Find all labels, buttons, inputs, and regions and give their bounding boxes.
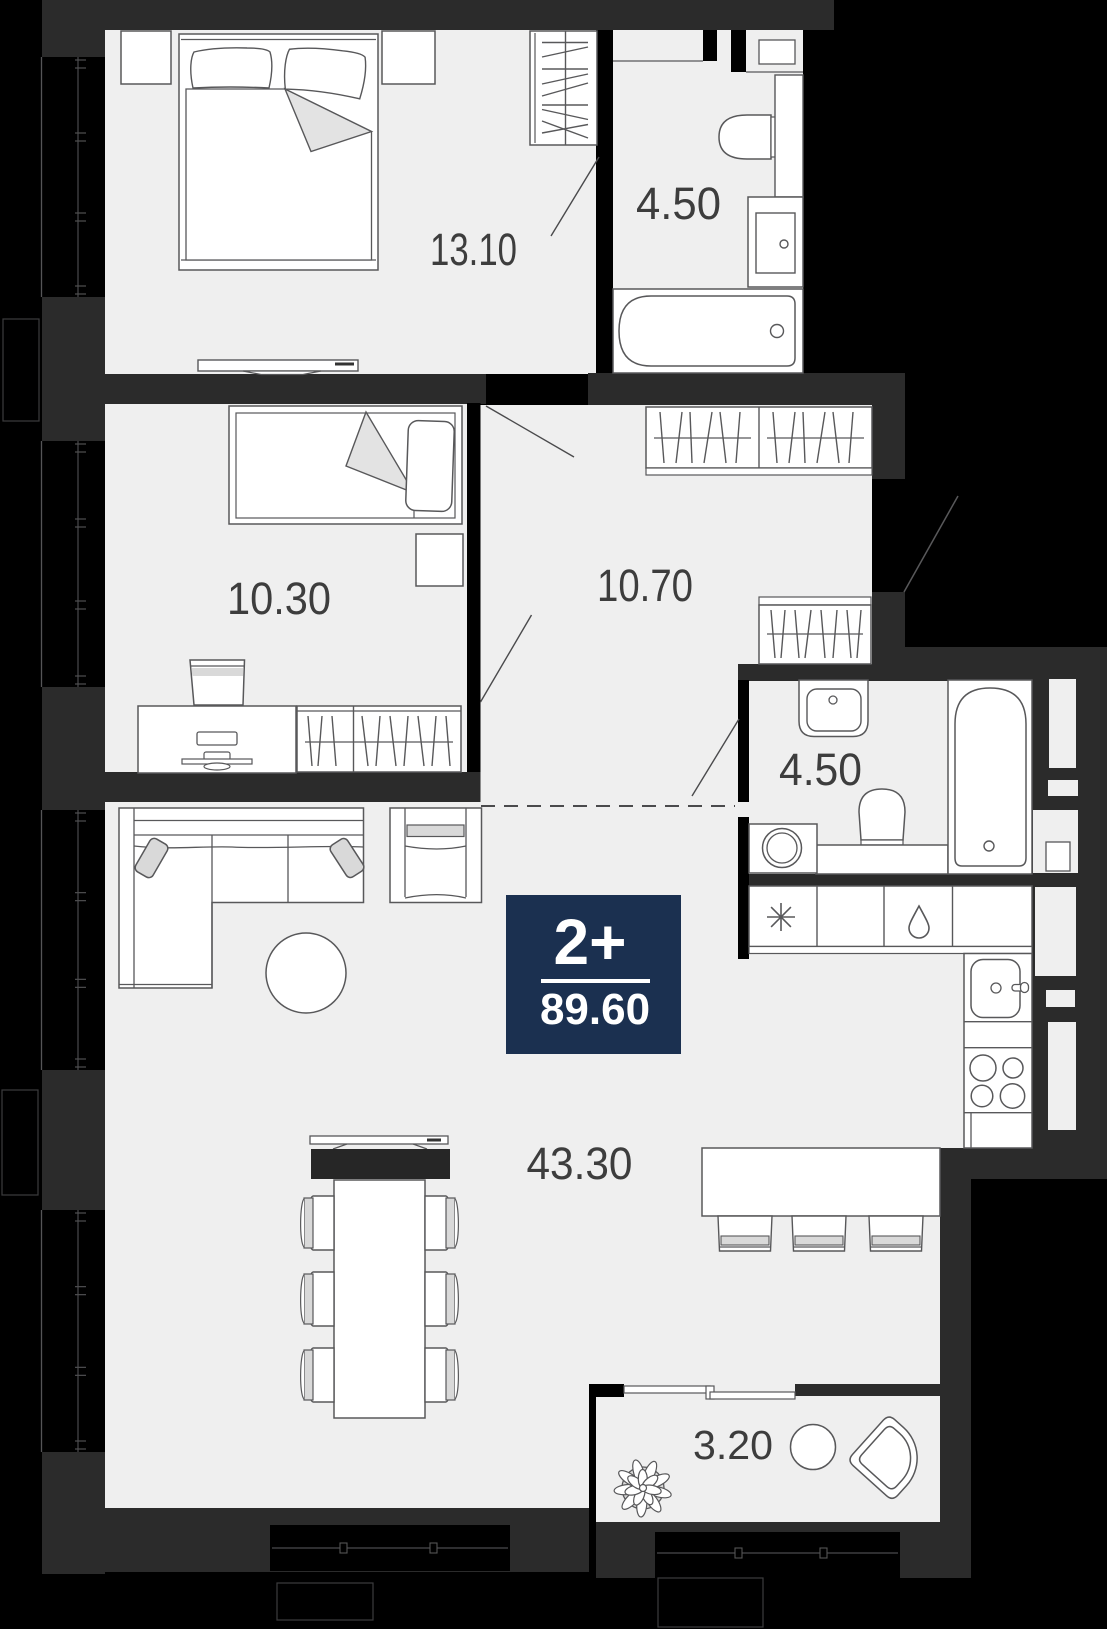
svg-text:13.10: 13.10 bbox=[430, 224, 517, 275]
svg-text:10.30: 10.30 bbox=[227, 573, 331, 624]
svg-text:3.20: 3.20 bbox=[693, 1422, 773, 1468]
svg-text:89.60: 89.60 bbox=[540, 985, 650, 1034]
svg-text:4.50: 4.50 bbox=[779, 744, 862, 795]
svg-text:4.50: 4.50 bbox=[636, 178, 721, 229]
svg-text:2+: 2+ bbox=[554, 906, 627, 978]
svg-text:10.70: 10.70 bbox=[597, 560, 693, 611]
svg-text:43.30: 43.30 bbox=[527, 1138, 633, 1189]
